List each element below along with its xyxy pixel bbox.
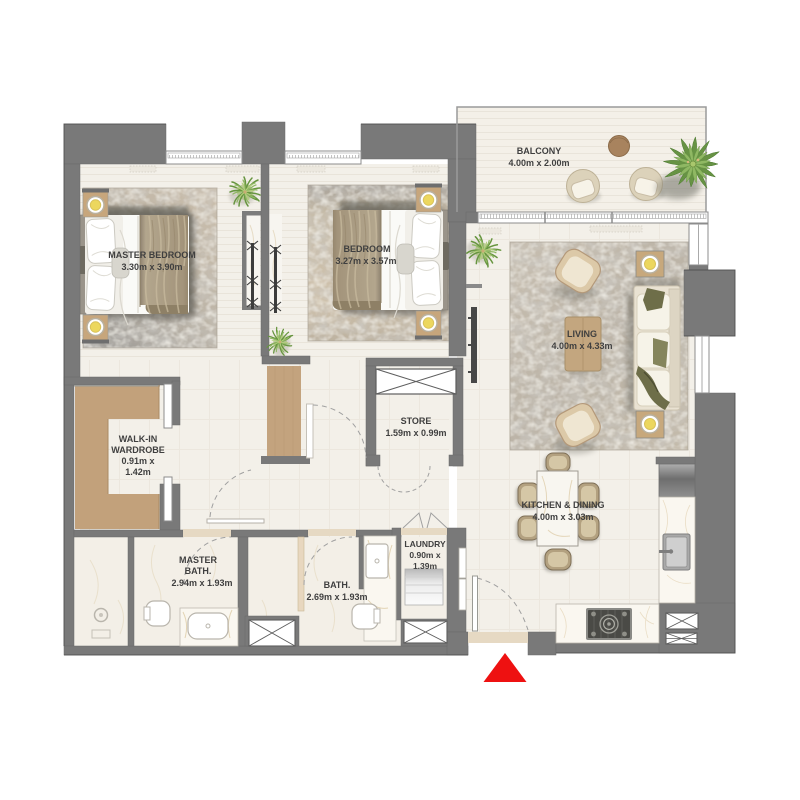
svg-text:3.30m x 3.90m: 3.30m x 3.90m — [121, 262, 182, 272]
svg-text:0.91m x: 0.91m x — [121, 456, 154, 466]
svg-text:2.94m x 1.93m: 2.94m x 1.93m — [171, 578, 232, 588]
svg-text:STORE: STORE — [401, 416, 432, 426]
svg-text:BATH.: BATH. — [185, 566, 212, 576]
svg-text:BEDROOM: BEDROOM — [344, 244, 391, 254]
svg-text:1.42m: 1.42m — [125, 467, 151, 477]
svg-text:4.00m x 3.03m: 4.00m x 3.03m — [532, 512, 593, 522]
svg-text:1.59m x 0.99m: 1.59m x 0.99m — [385, 428, 446, 438]
svg-text:MASTER BEDROOM: MASTER BEDROOM — [108, 250, 196, 260]
svg-text:2.69m x 1.93m: 2.69m x 1.93m — [306, 592, 367, 602]
svg-text:4.00m x 4.33m: 4.00m x 4.33m — [551, 341, 612, 351]
svg-text:KITCHEN & DINING: KITCHEN & DINING — [522, 500, 605, 510]
svg-text:BATH.: BATH. — [324, 580, 351, 590]
svg-text:WALK-IN: WALK-IN — [119, 434, 158, 444]
svg-text:BALCONY: BALCONY — [517, 146, 562, 156]
svg-text:WARDROBE: WARDROBE — [111, 445, 165, 455]
svg-text:LIVING: LIVING — [567, 329, 597, 339]
svg-text:0.90m x: 0.90m x — [409, 550, 440, 560]
svg-text:4.00m x 2.00m: 4.00m x 2.00m — [508, 158, 569, 168]
svg-text:MASTER: MASTER — [179, 555, 218, 565]
svg-text:3.27m x 3.57m: 3.27m x 3.57m — [335, 256, 396, 266]
svg-text:LAUNDRY: LAUNDRY — [404, 539, 446, 549]
svg-text:1.39m: 1.39m — [413, 561, 438, 571]
